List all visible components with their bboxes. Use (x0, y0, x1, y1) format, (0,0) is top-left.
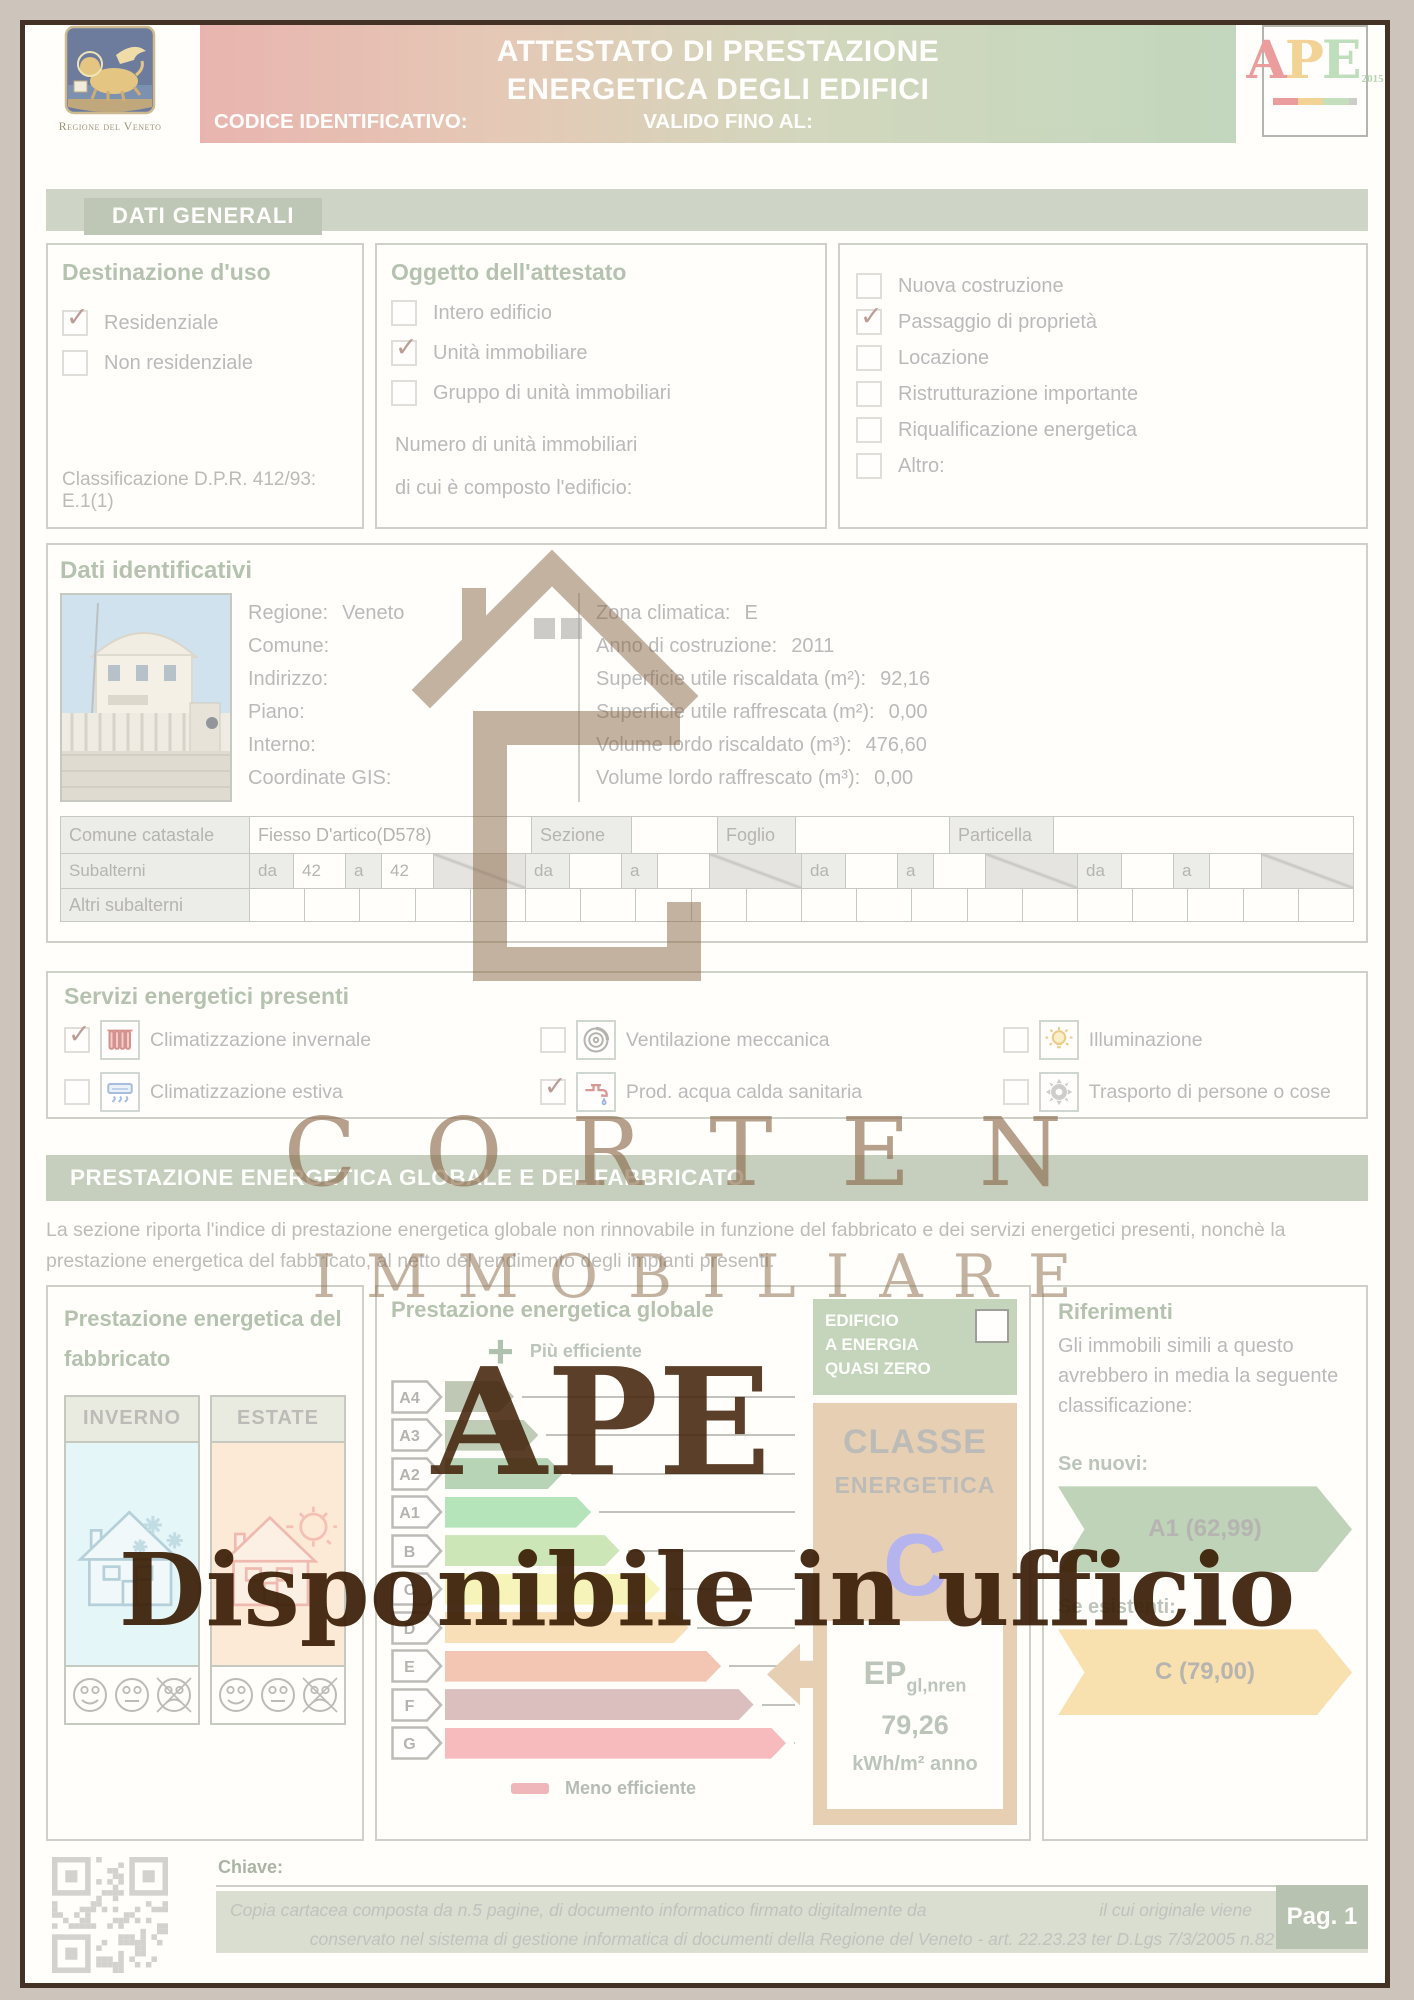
field-value: E (745, 602, 758, 625)
motivo-options: Nuova costruzione✓Passaggio di proprietà… (856, 273, 1350, 479)
fan-icon (576, 1020, 616, 1060)
checkbox[interactable] (856, 417, 882, 443)
energy-class-bar (445, 1728, 786, 1759)
a-label-cell: a (897, 854, 933, 888)
nzeb-line2: A ENERGIA (825, 1333, 973, 1357)
checkbox-option: Ristrutturazione importante (856, 381, 1350, 407)
energy-class-row: A3 (391, 1416, 797, 1455)
nzeb-checkbox[interactable] (975, 1309, 1009, 1343)
scale-line (628, 1550, 795, 1552)
banner-labels: CODICE IDENTIFICATIVO: VALIDO FINO AL: (200, 110, 1236, 134)
document-title-line1: ATTESTATO DI PRESTAZIONE (200, 33, 1236, 71)
fabbricato-box: Prestazione energetica del fabbricato IN… (46, 1285, 364, 1841)
checkbox-label: Ristrutturazione importante (898, 383, 1138, 406)
smiley-neutral-icon (112, 1675, 152, 1715)
svg-text:A2: A2 (399, 1467, 420, 1484)
energy-class-bar (445, 1458, 563, 1489)
chiave-underline (216, 1885, 1368, 1887)
data-field: Interno: (248, 732, 578, 758)
data-field: Coordinate GIS: (248, 765, 578, 791)
checkbox[interactable]: ✓ (64, 1027, 90, 1053)
empty-cell (746, 889, 801, 921)
servizi-box: Servizi energetici presenti ✓Climatizzaz… (46, 971, 1368, 1119)
class-label-arrow: G (391, 1726, 443, 1760)
document-title-line2: ENERGETICA DEGLI EDIFICI (200, 71, 1236, 109)
dati-identificativi-title: Dati identificativi (60, 557, 1354, 585)
check-mark: ✓ (860, 301, 883, 332)
a-label-cell: a (1173, 854, 1209, 888)
classe-label: CLASSE (813, 1423, 1017, 1462)
empty-cell (525, 889, 580, 921)
estate-panel (212, 1441, 344, 1667)
energy-class-bar (445, 1612, 689, 1643)
checkbox[interactable] (856, 381, 882, 407)
subalterno-da-value (1121, 854, 1173, 888)
field-label: Superficie utile raffrescata (m²): (596, 701, 875, 724)
smiley-happy-icon (70, 1675, 110, 1715)
class-label-arrow: E (391, 1649, 443, 1683)
checkbox[interactable]: ✓ (391, 340, 417, 366)
empty-cell (415, 889, 470, 921)
checkbox[interactable] (62, 350, 88, 376)
class-label-arrow: A1 (391, 1495, 443, 1529)
data-field: Superficie utile riscaldata (m²):92,16 (596, 666, 1354, 692)
service-label: Ventilazione meccanica (626, 1029, 830, 1052)
document-title: ATTESTATO DI PRESTAZIONE ENERGETICA DEGL… (200, 33, 1236, 108)
class-panel-column: EDIFICIO A ENERGIA QUASI ZERO CLASSE ENE… (813, 1299, 1017, 1825)
nzeb-box: EDIFICIO A ENERGIA QUASI ZERO (813, 1299, 1017, 1395)
catasto-header-cell: Comune catastale (61, 817, 249, 853)
checkbox[interactable] (391, 380, 417, 406)
service-item: Ventilazione meccanica (540, 1020, 1003, 1060)
service-item: ✓Prod. acqua calda sanitaria (540, 1072, 1003, 1112)
general-data-row: Destinazione d'uso ✓ResidenzialeNon resi… (46, 243, 1368, 529)
checkbox-option: Intero edificio (391, 300, 811, 326)
meno-efficiente-label: Meno efficiente (565, 1778, 696, 1799)
data-field: Indirizzo: (248, 666, 578, 692)
checkbox[interactable] (856, 453, 882, 479)
catasto-row-comune: Comune catastaleFiesso D'artico(D578)Sez… (61, 817, 1353, 853)
catasto-header-cell: Altri subalterni (61, 889, 249, 921)
estate-card: ESTATE (210, 1395, 346, 1725)
service-label: Prod. acqua calda sanitaria (626, 1081, 862, 1104)
svg-text:E: E (404, 1659, 415, 1676)
ep-label: EPgl,nren (864, 1655, 967, 1696)
energy-class-row: C (391, 1570, 797, 1609)
inverno-header: INVERNO (66, 1397, 198, 1441)
field-label: Zona climatica: (596, 602, 731, 625)
empty-cell (801, 889, 856, 921)
faucet-icon (576, 1072, 616, 1112)
radiator-icon (100, 1020, 140, 1060)
checkbox[interactable]: ✓ (540, 1079, 566, 1105)
scale-line (571, 1473, 795, 1475)
data-field: Piano: (248, 699, 578, 725)
oggetto-box: Oggetto dell'attestato Intero edificio✓U… (375, 243, 827, 529)
section-title-dati-generali: DATI GENERALI (84, 198, 322, 235)
data-field: Regione:Veneto (248, 600, 578, 626)
catasto-header-cell: Sezione (531, 817, 631, 853)
checkbox-option: Gruppo di unità immobiliari (391, 380, 811, 406)
ape-letter-e: E (1322, 35, 1360, 87)
svg-text:C: C (404, 1582, 416, 1599)
field-label: Superficie utile riscaldata (m²): (596, 668, 866, 691)
dati-left-fields: Regione:VenetoComune:Indirizzo:Piano:Int… (232, 593, 578, 802)
field-value: 2011 (791, 635, 834, 658)
class-label-arrow: C (391, 1572, 443, 1606)
nzeb-line3: QUASI ZERO (825, 1357, 973, 1381)
field-value: 0,00 (889, 701, 928, 724)
dati-right-fields: Zona climatica:EAnno di costruzione:2011… (578, 593, 1354, 802)
checkbox-label: Riqualificazione energetica (898, 419, 1137, 442)
regione-veneto-logo-icon (61, 25, 159, 117)
field-label: Piano: (248, 701, 305, 724)
class-label-arrow: A3 (391, 1418, 443, 1452)
service-item: Illuminazione (1003, 1020, 1350, 1060)
empty-cell (856, 889, 911, 921)
scale-line (697, 1627, 795, 1629)
header: Regione del Veneto ATTESTATO DI PRESTAZI… (46, 25, 1368, 143)
data-field: Volume lordo riscaldato (m³):476,60 (596, 732, 1354, 758)
ep-value: 79,26 (881, 1710, 949, 1741)
certificate-page: Regione del Veneto ATTESTATO DI PRESTAZI… (0, 0, 1414, 2000)
subalterno-a-value: 42 (381, 854, 433, 888)
data-field: Superficie utile raffrescata (m²):0,00 (596, 699, 1354, 725)
footer-line1-left: Copia cartacea composta da n.5 pagine, d… (230, 1900, 927, 1921)
page-number-badge: Pag. 1 (1276, 1885, 1368, 1949)
motivo-box: Nuova costruzione✓Passaggio di proprietà… (838, 243, 1368, 529)
gear-icon (1039, 1072, 1079, 1112)
ac-icon (100, 1072, 140, 1112)
field-label: Indirizzo: (248, 668, 328, 691)
service-item: Climatizzazione estiva (64, 1072, 540, 1112)
svg-text:A3: A3 (399, 1428, 420, 1445)
section-band-prestazione: PRESTAZIONE ENERGETICA GLOBALE E DEL FAB… (46, 1155, 1368, 1201)
service-label: Climatizzazione invernale (150, 1029, 371, 1052)
nzeb-label: EDIFICIO A ENERGIA QUASI ZERO (825, 1309, 973, 1385)
svg-text:F: F (405, 1698, 415, 1715)
checkbox-label: Nuova costruzione (898, 275, 1064, 298)
field-label: Volume lordo riscaldato (m³): (596, 734, 852, 757)
checkbox-label: Locazione (898, 347, 989, 370)
section-band-dati-generali: DATI GENERALI (46, 189, 1368, 231)
svg-text:B: B (404, 1544, 416, 1561)
classificazione-text: Classificazione D.P.R. 412/93: E.1(1) (62, 469, 348, 517)
scale-line (522, 1396, 795, 1398)
catasto-value-cell (795, 817, 949, 853)
energy-class-bar (445, 1381, 514, 1412)
svg-text:D: D (404, 1621, 416, 1638)
se-nuovi-ribbon: A1 (62,99) (1058, 1486, 1352, 1572)
energy-class-row: G (391, 1724, 797, 1763)
energy-class-row: F (391, 1685, 797, 1724)
riferimenti-description: Gli immobili simili a questo avrebbero i… (1058, 1331, 1352, 1421)
checkbox[interactable]: ✓ (856, 309, 882, 335)
check-mark: ✓ (68, 1019, 91, 1050)
data-field: Volume lordo raffrescato (m³):0,00 (596, 765, 1354, 791)
energy-class-scale: A4A3A2A1BCDEFG (391, 1377, 797, 1762)
classe-energetica-panel: CLASSE ENERGETICA C EPgl,nren 79,26 kWh/… (813, 1403, 1017, 1825)
subalterno-a-value (1209, 854, 1261, 888)
servizi-grid: ✓Climatizzazione invernaleVentilazione m… (64, 1020, 1350, 1112)
checkbox-label: Passaggio di proprietà (898, 311, 1097, 334)
scale-line (599, 1511, 795, 1513)
field-label: Regione: (248, 602, 328, 625)
catasto-header-cell: Subalterni (61, 854, 249, 888)
season-cards: INVERNO (64, 1395, 346, 1725)
data-field: Comune: (248, 633, 578, 659)
se-esistenti-ribbon: C (79,00) (1058, 1629, 1352, 1715)
subalterno-a-value (657, 854, 709, 888)
catasto-value-cell (631, 817, 717, 853)
subalterno-a-value (933, 854, 985, 888)
footer-line1: Copia cartacea composta da n.5 pagine, d… (230, 1900, 1252, 1921)
checkbox-option: Nuova costruzione (856, 273, 1350, 299)
data-field: Anno di costruzione:2011 (596, 633, 1354, 659)
riferimenti-title: Riferimenti (1058, 1299, 1352, 1325)
ep-subscript: gl,nren (906, 1675, 966, 1695)
inverno-panel (66, 1441, 198, 1667)
checkbox-option: ✓Residenziale (62, 310, 348, 336)
nzeb-line1: EDIFICIO (825, 1309, 973, 1333)
empty-cell (1298, 889, 1353, 921)
empty-cell (1187, 889, 1242, 921)
empty-cell (580, 889, 635, 921)
empty-cell (1022, 889, 1077, 921)
data-field: Zona climatica:E (596, 600, 1354, 626)
energy-class-row: B (391, 1531, 797, 1570)
ape-logo-letters: APE 2015 (1246, 35, 1383, 87)
checkbox[interactable] (540, 1027, 566, 1053)
energy-class-bar (445, 1535, 620, 1566)
svg-text:A4: A4 (399, 1390, 420, 1407)
fabbricato-title-line2: fabbricato (64, 1339, 346, 1379)
oggetto-title: Oggetto dell'attestato (391, 259, 811, 286)
da-label-cell: da (249, 854, 293, 888)
performance-row: Prestazione energetica del fabbricato IN… (46, 1285, 1368, 1841)
region-logo-block: Regione del Veneto (46, 25, 174, 143)
service-item: ✓Climatizzazione invernale (64, 1020, 540, 1060)
chiave-label: Chiave: (218, 1857, 283, 1878)
energy-class-row: D (391, 1608, 797, 1647)
scale-line (762, 1704, 795, 1706)
scale-line (546, 1434, 795, 1436)
checkbox[interactable] (1003, 1027, 1029, 1053)
estate-header: ESTATE (212, 1397, 344, 1441)
plus-icon: + (487, 1333, 514, 1370)
service-label: Climatizzazione estiva (150, 1081, 343, 1104)
footer-band: Copia cartacea composta da n.5 pagine, d… (216, 1891, 1368, 1953)
smiley-happy-icon (216, 1675, 256, 1715)
prestazione-description: La sezione riporta l'indice di prestazio… (46, 1215, 1355, 1277)
catasto-row-altri: Altri subalterni (61, 888, 1353, 921)
checkbox-label: Residenziale (104, 312, 219, 335)
globale-box: Prestazione energetica globale + Più eff… (375, 1285, 1031, 1841)
se-nuovi-label: Se nuovi: (1058, 1453, 1352, 1476)
checkbox[interactable] (64, 1079, 90, 1105)
ape-logo-bar (1273, 98, 1357, 105)
class-label-arrow: B (391, 1534, 443, 1568)
class-label-arrow: A2 (391, 1457, 443, 1491)
empty-cell (635, 889, 690, 921)
empty-cell (470, 889, 525, 921)
class-label-arrow: F (391, 1688, 443, 1722)
service-item: Trasporto di persone o cose (1003, 1072, 1350, 1112)
class-label-arrow: D (391, 1611, 443, 1645)
empty-cell (1243, 889, 1298, 921)
diagonal-cell (433, 854, 525, 888)
energy-class-row: A4 (391, 1377, 797, 1416)
field-value: 92,16 (880, 668, 930, 691)
energy-class-value: C (813, 1521, 1017, 1609)
estate-rating (212, 1667, 344, 1723)
svg-text:A1: A1 (399, 1505, 420, 1522)
field-label: Interno: (248, 734, 316, 757)
document-content: Regione del Veneto ATTESTATO DI PRESTAZI… (0, 0, 1414, 2000)
catasto-value-cell: Fiesso D'artico(D578) (249, 817, 531, 853)
field-label: Comune: (248, 635, 329, 658)
subalterno-da-value (845, 854, 897, 888)
checkbox-option: Locazione (856, 345, 1350, 371)
section-title-prestazione: PRESTAZIONE ENERGETICA GLOBALE E DEL FAB… (46, 1165, 745, 1191)
diagonal-cell (1261, 854, 1353, 888)
checkbox-label: Non residenziale (104, 352, 253, 375)
checkbox-label: Intero edificio (433, 302, 552, 325)
energy-class-bar (445, 1574, 660, 1605)
catasto-header-cell: Foglio (717, 817, 795, 853)
catasto-table: Comune catastaleFiesso D'artico(D578)Sez… (60, 816, 1354, 922)
destinazione-box: Destinazione d'uso ✓ResidenzialeNon resi… (46, 243, 364, 529)
ape-logo: APE 2015 (1262, 25, 1368, 137)
checkbox-option: Riqualificazione energetica (856, 417, 1350, 443)
checkbox[interactable] (391, 300, 417, 326)
service-label: Trasporto di persone o cose (1089, 1081, 1331, 1104)
check-mark: ✓ (544, 1071, 567, 1102)
a-label-cell: a (621, 854, 657, 888)
inverno-rating (66, 1667, 198, 1723)
region-logo-caption: Regione del Veneto (59, 119, 162, 134)
ape-letter-a: A (1246, 35, 1284, 87)
oggetto-options: Intero edificio✓Unità immobiliareGruppo … (391, 300, 811, 406)
checkbox[interactable] (1003, 1079, 1029, 1105)
checkbox-option: Non residenziale (62, 350, 348, 376)
ep-unit: kWh/m² anno (852, 1753, 978, 1776)
destinazione-options: ✓ResidenzialeNon residenziale (62, 296, 348, 390)
svg-text:G: G (403, 1736, 415, 1753)
empty-cell (1077, 889, 1132, 921)
ep-value-box: EPgl,nren 79,26 kWh/m² anno (827, 1621, 1003, 1809)
winter-house-icon (73, 1494, 191, 1614)
field-label: Anno di costruzione: (596, 635, 777, 658)
bulb-icon (1039, 1020, 1079, 1060)
service-label: Illuminazione (1089, 1029, 1203, 1052)
fabbricato-title: Prestazione energetica del fabbricato (64, 1299, 346, 1378)
destinazione-title: Destinazione d'uso (62, 259, 348, 286)
empty-cell (967, 889, 1022, 921)
field-value: 0,00 (874, 767, 913, 790)
checkbox-option: ✓Passaggio di proprietà (856, 309, 1350, 335)
check-mark: ✓ (66, 302, 89, 333)
summer-house-icon (219, 1494, 337, 1614)
meno-efficiente-swatch (511, 1783, 549, 1794)
empty-cell (359, 889, 414, 921)
title-banner: ATTESTATO DI PRESTAZIONE ENERGETICA DEGL… (200, 25, 1236, 143)
a-label-cell: a (345, 854, 381, 888)
energy-class-row: E (391, 1647, 797, 1686)
inverno-card: INVERNO (64, 1395, 200, 1725)
ape-letter-p: P (1285, 35, 1322, 87)
footer-line1-right: il cui originale viene (1099, 1900, 1252, 1921)
dati-identificativi-body: Regione:VenetoComune:Indirizzo:Piano:Int… (60, 593, 1354, 802)
field-label: Volume lordo raffrescato (m³): (596, 767, 860, 790)
numero-unita-line1: Numero di unità immobiliari (395, 424, 811, 467)
dati-identificativi-box: Dati identificativi (46, 543, 1368, 943)
subalterno-da-value: 42 (293, 854, 345, 888)
field-value: Veneto (342, 602, 404, 625)
valido-fino-label: VALIDO FINO AL: (643, 110, 813, 134)
energy-class-row: A2 (391, 1454, 797, 1493)
checkbox-label: Altro: (898, 455, 945, 478)
numero-unita-text: Numero di unità immobiliari di cui è com… (395, 424, 811, 510)
diagonal-cell (709, 854, 801, 888)
fabbricato-title-line1: Prestazione energetica del (64, 1299, 346, 1339)
smiley-sad-crossed-icon (300, 1675, 340, 1715)
ape-year: 2015 (1362, 74, 1384, 85)
footer: Chiave: Copia cartacea composta da n.5 p… (46, 1857, 1368, 1981)
checkbox-label: Gruppo di unità immobiliari (433, 382, 671, 405)
checkbox-option: Altro: (856, 453, 1350, 479)
smiley-neutral-icon (258, 1675, 298, 1715)
energy-class-bar (445, 1689, 754, 1720)
numero-unita-line2: di cui è composto l'edificio: (395, 467, 811, 510)
energy-class-row: A1 (391, 1493, 797, 1532)
codice-identificativo-label: CODICE IDENTIFICATIVO: (214, 110, 643, 134)
da-label-cell: da (1077, 854, 1121, 888)
energetica-label: ENERGETICA (813, 1472, 1017, 1499)
piu-efficiente-label: Più efficiente (530, 1341, 642, 1362)
scale-line (668, 1588, 795, 1590)
qr-code-icon (52, 1857, 168, 1973)
energy-class-bar (445, 1420, 538, 1451)
se-esistenti-label: Se esistenti: (1058, 1596, 1352, 1619)
class-label-arrow: A4 (391, 1380, 443, 1414)
property-photo (60, 593, 232, 802)
da-label-cell: da (525, 854, 569, 888)
checkbox-label: Unità immobiliare (433, 342, 588, 365)
da-label-cell: da (801, 854, 845, 888)
empty-cell (304, 889, 359, 921)
catasto-header-cell: Particella (949, 817, 1053, 853)
field-label: Coordinate GIS: (248, 767, 391, 790)
empty-cell (691, 889, 746, 921)
footer-line2: conservato nel sistema di gestione infor… (216, 1929, 1368, 1950)
checkbox[interactable] (856, 273, 882, 299)
empty-cell (911, 889, 966, 921)
subalterno-da-value (569, 854, 621, 888)
smiley-sad-crossed-icon (154, 1675, 194, 1715)
energy-class-bar (445, 1497, 591, 1528)
energy-class-bar (445, 1651, 721, 1682)
scale-line (794, 1742, 795, 1744)
check-mark: ✓ (395, 332, 418, 363)
checkbox[interactable]: ✓ (62, 310, 88, 336)
diagonal-cell (985, 854, 1077, 888)
servizi-title: Servizi energetici presenti (64, 983, 1350, 1010)
checkbox[interactable] (856, 345, 882, 371)
checkbox-option: ✓Unità immobiliare (391, 340, 811, 366)
empty-cell (1132, 889, 1187, 921)
empty-cell (249, 889, 304, 921)
